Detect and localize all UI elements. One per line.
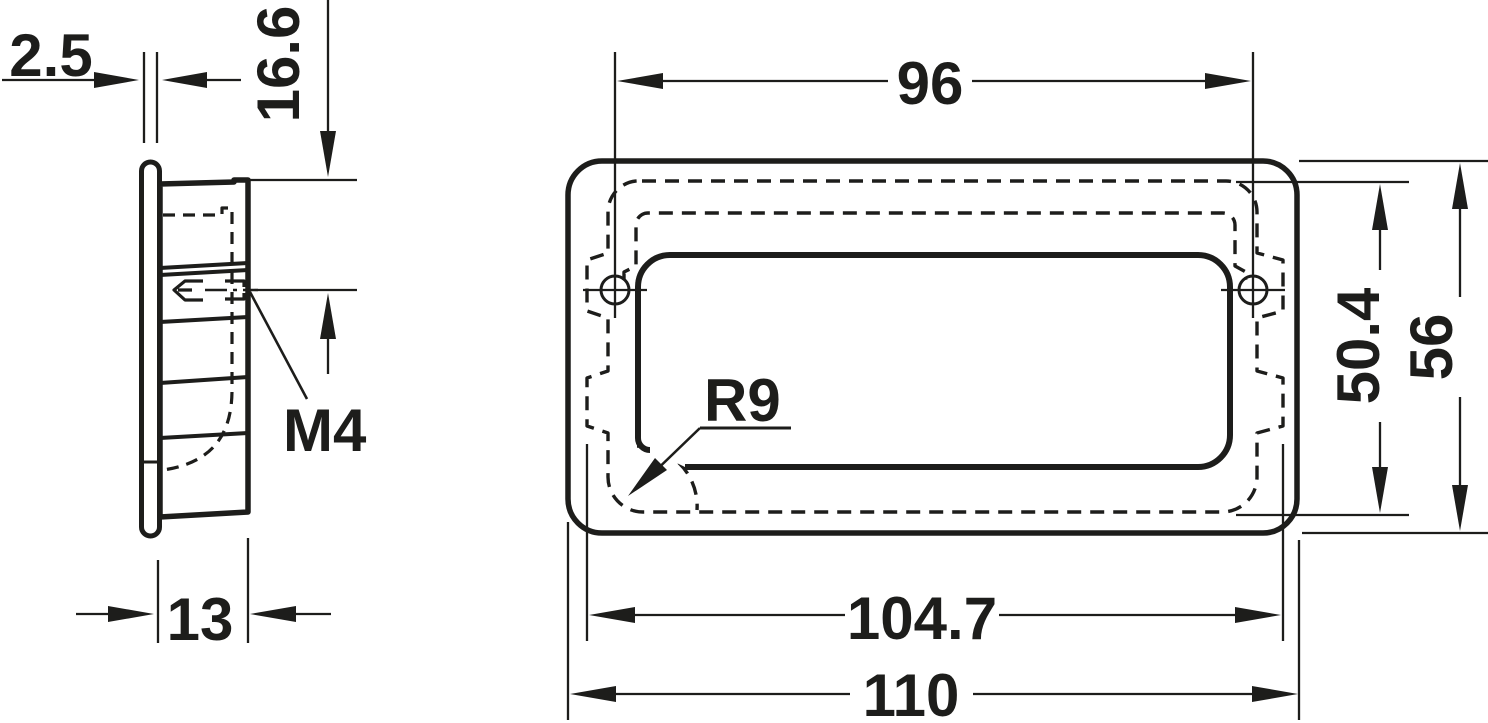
- dimension-top-to-hole: 16.6: [245, 0, 357, 374]
- dimension-hole-spacing-label: 96: [897, 50, 964, 117]
- front-view: [568, 161, 1297, 533]
- dimension-depth: 13: [76, 538, 331, 653]
- dimension-overall-width-label: 110: [863, 662, 960, 723]
- dimension-recess-width-label: 104.7: [847, 585, 997, 652]
- technical-drawing-page: 2.5 16.6 M4 13 96: [0, 0, 1488, 723]
- m4-leader-line: [250, 292, 307, 399]
- side-view-body: [160, 180, 248, 517]
- dimension-recess-height-label: 50.4: [1325, 287, 1392, 404]
- side-view: [142, 162, 308, 536]
- thread-size-label: M4: [283, 397, 367, 464]
- side-view-flange: [142, 162, 160, 536]
- dimension-flange-thickness-label: 2.5: [9, 22, 92, 89]
- technical-drawing: 2.5 16.6 M4 13 96: [0, 0, 1488, 723]
- dimension-overall-height-label: 56: [1398, 314, 1465, 381]
- dimension-depth-label: 13: [167, 586, 234, 653]
- dimension-top-to-hole-label: 16.6: [245, 6, 312, 123]
- front-view-recess-opening: [638, 255, 1230, 467]
- dimension-flange-thickness: 2.5: [2, 22, 241, 143]
- radius-callout-r9-label: R9: [704, 367, 781, 434]
